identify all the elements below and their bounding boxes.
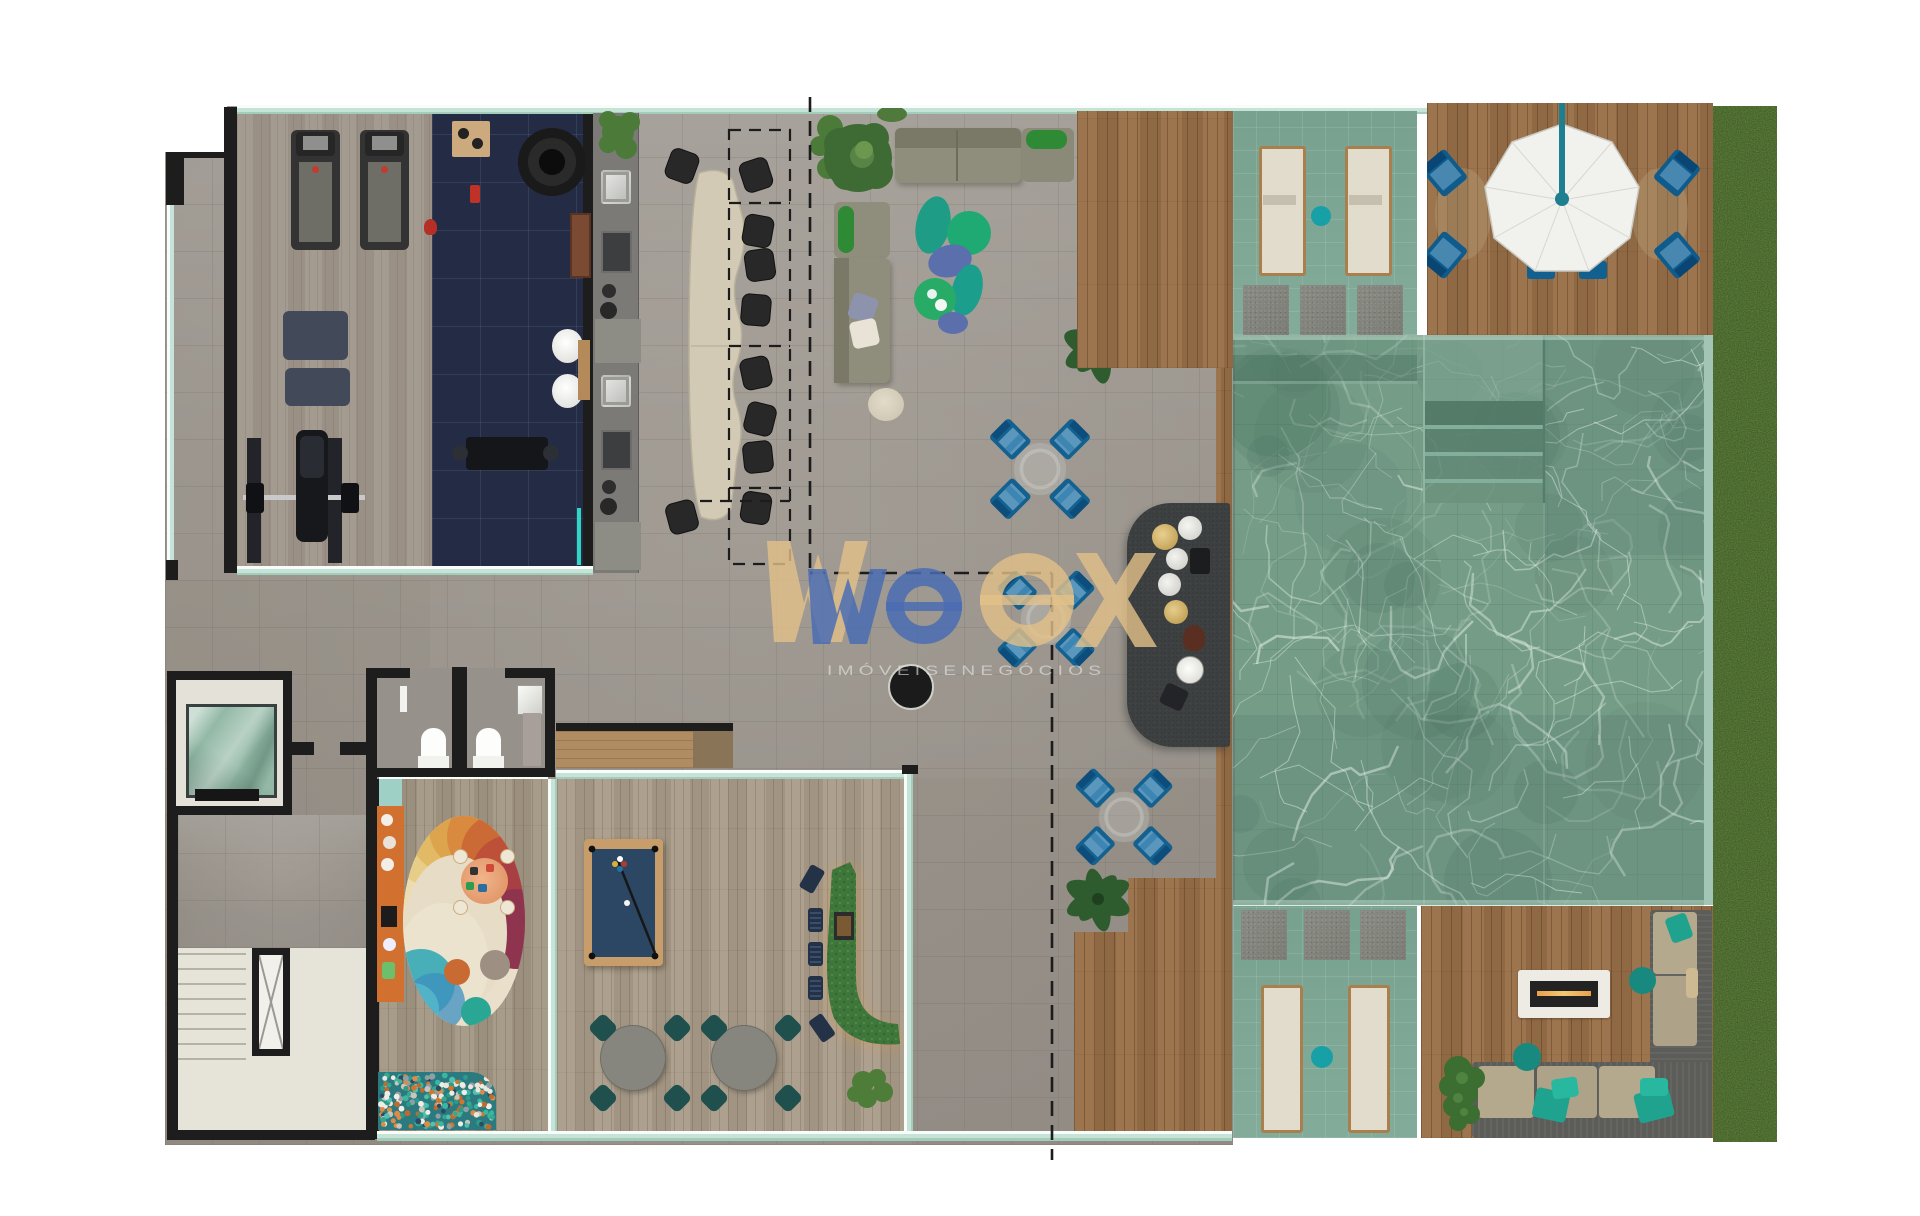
svg-text:I M Ó V E I S E N E G Ó C: I M Ó V E I S E N E G Ó C I O S [827, 662, 1101, 678]
